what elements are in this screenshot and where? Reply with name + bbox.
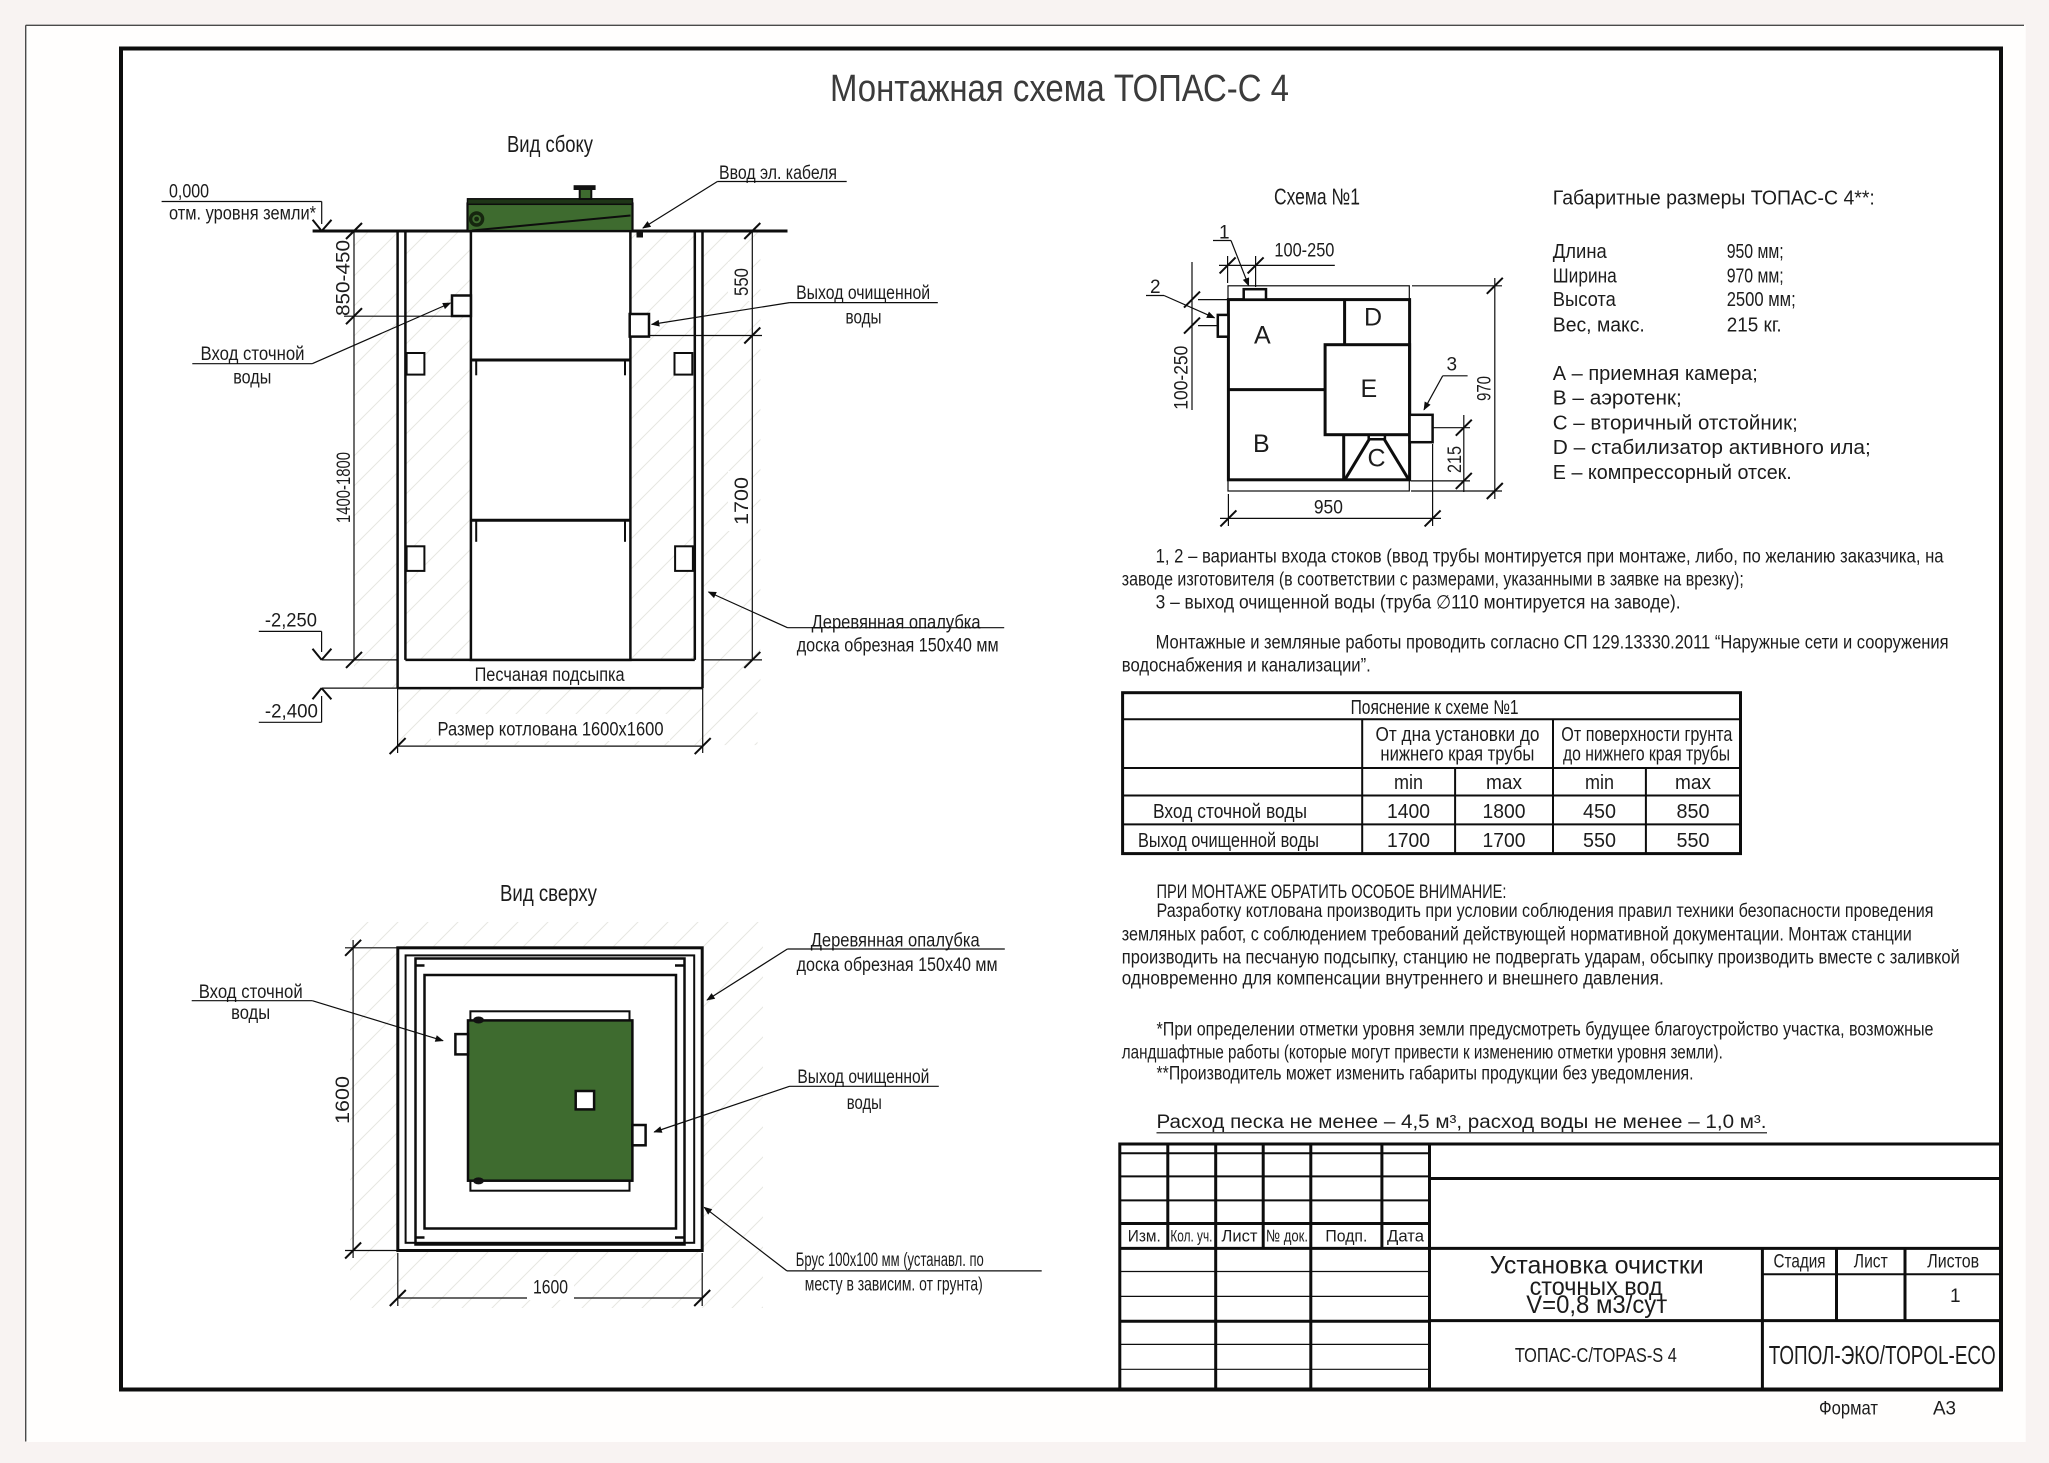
- svg-text:Ширина: Ширина: [1553, 265, 1618, 287]
- svg-text:950 мм;: 950 мм;: [1727, 241, 1784, 263]
- svg-text:ТОПАС-С/TOPAS-S 4: ТОПАС-С/TOPAS-S 4: [1515, 1345, 1677, 1367]
- svg-text:215: 215: [1445, 446, 1466, 473]
- svg-text:месту в зависим. от грунта): месту в зависим. от грунта): [805, 1275, 983, 1296]
- svg-text:Ввод эл. кабеля: Ввод эл. кабеля: [719, 163, 837, 184]
- svg-text:Монтажные и земляные работы пр: Монтажные и земляные работы проводить со…: [1156, 633, 1949, 654]
- svg-text:Деревянная опалубка: Деревянная опалубка: [811, 930, 980, 951]
- svg-text:**Производитель может изменить: **Производитель может изменить габариты …: [1157, 1063, 1694, 1084]
- svg-text:550: 550: [1677, 830, 1710, 852]
- svg-text:550: 550: [732, 268, 753, 296]
- svg-text:Выход очищенной: Выход очищенной: [797, 1067, 929, 1088]
- svg-text:1, 2 – варианты входа стоков: 1, 2 – варианты входа стоков (ввод трубы…: [1156, 546, 1944, 567]
- svg-text:воды: воды: [847, 1093, 882, 1114]
- svg-text:1400-1800: 1400-1800: [334, 452, 355, 523]
- svg-text:850-450: 850-450: [334, 240, 355, 316]
- svg-text:ландшафтные работы (которые мо: ландшафтные работы (которые могут привес…: [1122, 1043, 1723, 1064]
- svg-text:Формат: Формат: [1819, 1399, 1878, 1420]
- svg-text:Разработку котлована производи: Разработку котлована производить при усл…: [1157, 901, 1934, 922]
- svg-text:min: min: [1585, 772, 1614, 794]
- svg-text:Лист: Лист: [1222, 1227, 1258, 1246]
- svg-text:Е: Е: [1361, 375, 1378, 403]
- svg-text:3: 3: [1447, 355, 1458, 376]
- svg-text:В: В: [1253, 430, 1270, 458]
- svg-text:450: 450: [1583, 801, 1616, 823]
- svg-text:доска обрезная 150х40 мм: доска обрезная 150х40 мм: [797, 955, 998, 976]
- svg-text:Вход сточной: Вход сточной: [201, 344, 305, 365]
- svg-text:Дата: Дата: [1387, 1227, 1425, 1246]
- svg-text:100-250: 100-250: [1172, 346, 1193, 410]
- svg-text:А – приемная камера;: А – приемная камера;: [1553, 363, 1758, 385]
- svg-text:Габаритные размеры ТОПАС-С 4**: Габаритные размеры ТОПАС-С 4**:: [1553, 188, 1875, 210]
- svg-text:Листов: Листов: [1927, 1252, 1979, 1273]
- svg-text:0,000: 0,000: [169, 182, 209, 203]
- svg-text:отм. уровня земли*: отм. уровня земли*: [169, 204, 317, 225]
- svg-text:Размер котлована 1600х1600: Размер котлована 1600х1600: [438, 720, 664, 741]
- svg-text:*При определении отметки уровн: *При определении отметки уровня земли пр…: [1157, 1019, 1934, 1040]
- svg-text:1700: 1700: [1483, 830, 1526, 852]
- svg-text:земляных работ, с соблюдением: земляных работ, с соблюдением требований…: [1122, 924, 1912, 945]
- svg-text:воды: воды: [846, 308, 882, 329]
- svg-text:215 кг.: 215 кг.: [1727, 315, 1782, 337]
- svg-text:850: 850: [1677, 801, 1710, 823]
- svg-text:№ док.: № док.: [1266, 1227, 1308, 1246]
- svg-text:Длина: Длина: [1553, 241, 1608, 263]
- svg-text:С – вторичный отстойник;: С – вторичный отстойник;: [1553, 413, 1798, 435]
- svg-text:100-250: 100-250: [1274, 241, 1334, 262]
- svg-text:А3: А3: [1933, 1399, 1956, 1420]
- svg-text:3 – выход очищенной воды (труб: 3 – выход очищенной воды (труба ∅110 мон…: [1156, 593, 1681, 614]
- svg-text:нижнего края трубы: нижнего края трубы: [1380, 744, 1534, 766]
- svg-text:1600: 1600: [533, 1278, 568, 1299]
- svg-text:Вес, макс.: Вес, макс.: [1553, 315, 1645, 337]
- svg-text:Вид сбоку: Вид сбоку: [507, 131, 593, 157]
- svg-text:водоснабжения и канализации”.: водоснабжения и канализации”.: [1122, 656, 1371, 677]
- svg-text:В – аэротенк;: В – аэротенк;: [1553, 388, 1682, 410]
- svg-text:Изм.: Изм.: [1128, 1227, 1161, 1246]
- svg-text:Лист: Лист: [1854, 1252, 1888, 1273]
- svg-text:Кол. уч.: Кол. уч.: [1170, 1227, 1212, 1246]
- svg-text:Е – компрессорный отсек.: Е – компрессорный отсек.: [1553, 462, 1792, 484]
- svg-text:Деревянная опалубка: Деревянная опалубка: [812, 613, 981, 634]
- svg-text:-2,400: -2,400: [265, 701, 318, 722]
- svg-text:Монтажная схема ТОПАС-С 4: Монтажная схема ТОПАС-С 4: [830, 68, 1289, 110]
- svg-text:1700: 1700: [732, 477, 753, 525]
- svg-text:1: 1: [1950, 1286, 1961, 1307]
- svg-text:ТОПОЛ-ЭКО/TOPOL-ECO: ТОПОЛ-ЭКО/TOPOL-ECO: [1769, 1340, 1996, 1370]
- svg-text:Пояснение к схеме №1: Пояснение к схеме №1: [1351, 697, 1519, 719]
- svg-text:min: min: [1394, 772, 1423, 794]
- svg-text:С: С: [1368, 445, 1386, 473]
- svg-text:950: 950: [1314, 498, 1343, 519]
- svg-text:заводе изготовителя (в соответ: заводе изготовителя (в соответствии с ра…: [1122, 570, 1744, 591]
- svg-text:970 мм;: 970 мм;: [1727, 265, 1784, 287]
- svg-text:max: max: [1675, 772, 1711, 794]
- svg-text:Стадия: Стадия: [1774, 1252, 1826, 1273]
- svg-text:производить на песчаную подсып: производить на песчаную подсыпку, станци…: [1122, 948, 1960, 969]
- svg-text:550: 550: [1583, 830, 1616, 852]
- svg-text:воды: воды: [231, 1003, 270, 1024]
- svg-text:Брус 100х100 мм (устанавл. по: Брус 100х100 мм (устанавл. по: [796, 1250, 984, 1271]
- svg-text:D – стабилизатор активного ила: D – стабилизатор активного ила;: [1553, 437, 1871, 459]
- svg-text:Вход сточной: Вход сточной: [199, 982, 303, 1003]
- svg-text:Песчаная подсыпка: Песчаная подсыпка: [475, 665, 625, 686]
- svg-text:до нижнего края трубы: до нижнего края трубы: [1563, 744, 1730, 766]
- svg-text:V=0,8 м3/сут: V=0,8 м3/сут: [1526, 1291, 1668, 1319]
- svg-text:-2,250: -2,250: [265, 611, 317, 632]
- svg-text:Подп.: Подп.: [1325, 1227, 1367, 1246]
- svg-text:воды: воды: [233, 367, 271, 388]
- svg-text:D: D: [1364, 303, 1382, 331]
- svg-text:Выход очищенной: Выход очищенной: [796, 283, 930, 304]
- svg-text:1400: 1400: [1387, 801, 1430, 823]
- svg-text:Схема №1: Схема №1: [1274, 184, 1360, 210]
- svg-text:max: max: [1486, 772, 1522, 794]
- svg-text:ПРИ МОНТАЖЕ ОБРАТИТЬ ОСОБОЕ ВН: ПРИ МОНТАЖЕ ОБРАТИТЬ ОСОБОЕ ВНИМАНИЕ:: [1157, 882, 1507, 903]
- svg-text:Высота: Высота: [1553, 289, 1617, 311]
- svg-text:1800: 1800: [1483, 801, 1526, 823]
- svg-text:1600: 1600: [333, 1076, 354, 1124]
- svg-text:А: А: [1254, 322, 1271, 350]
- svg-text:1700: 1700: [1387, 830, 1430, 852]
- svg-text:одновременно для компенсации в: одновременно для компенсации внутреннего…: [1122, 968, 1664, 989]
- svg-text:2500 мм;: 2500 мм;: [1727, 289, 1796, 311]
- svg-text:Вид сверху: Вид сверху: [500, 880, 597, 906]
- svg-text:Выход очищенной воды: Выход очищенной воды: [1138, 830, 1319, 852]
- svg-text:970: 970: [1475, 376, 1496, 401]
- svg-text:Расход песка не менее – 4,5 м³: Расход песка не менее – 4,5 м³, расход в…: [1157, 1112, 1767, 1133]
- svg-text:Вход сточной воды: Вход сточной воды: [1153, 801, 1307, 823]
- svg-text:доска обрезная 150х40 мм: доска обрезная 150х40 мм: [797, 636, 999, 657]
